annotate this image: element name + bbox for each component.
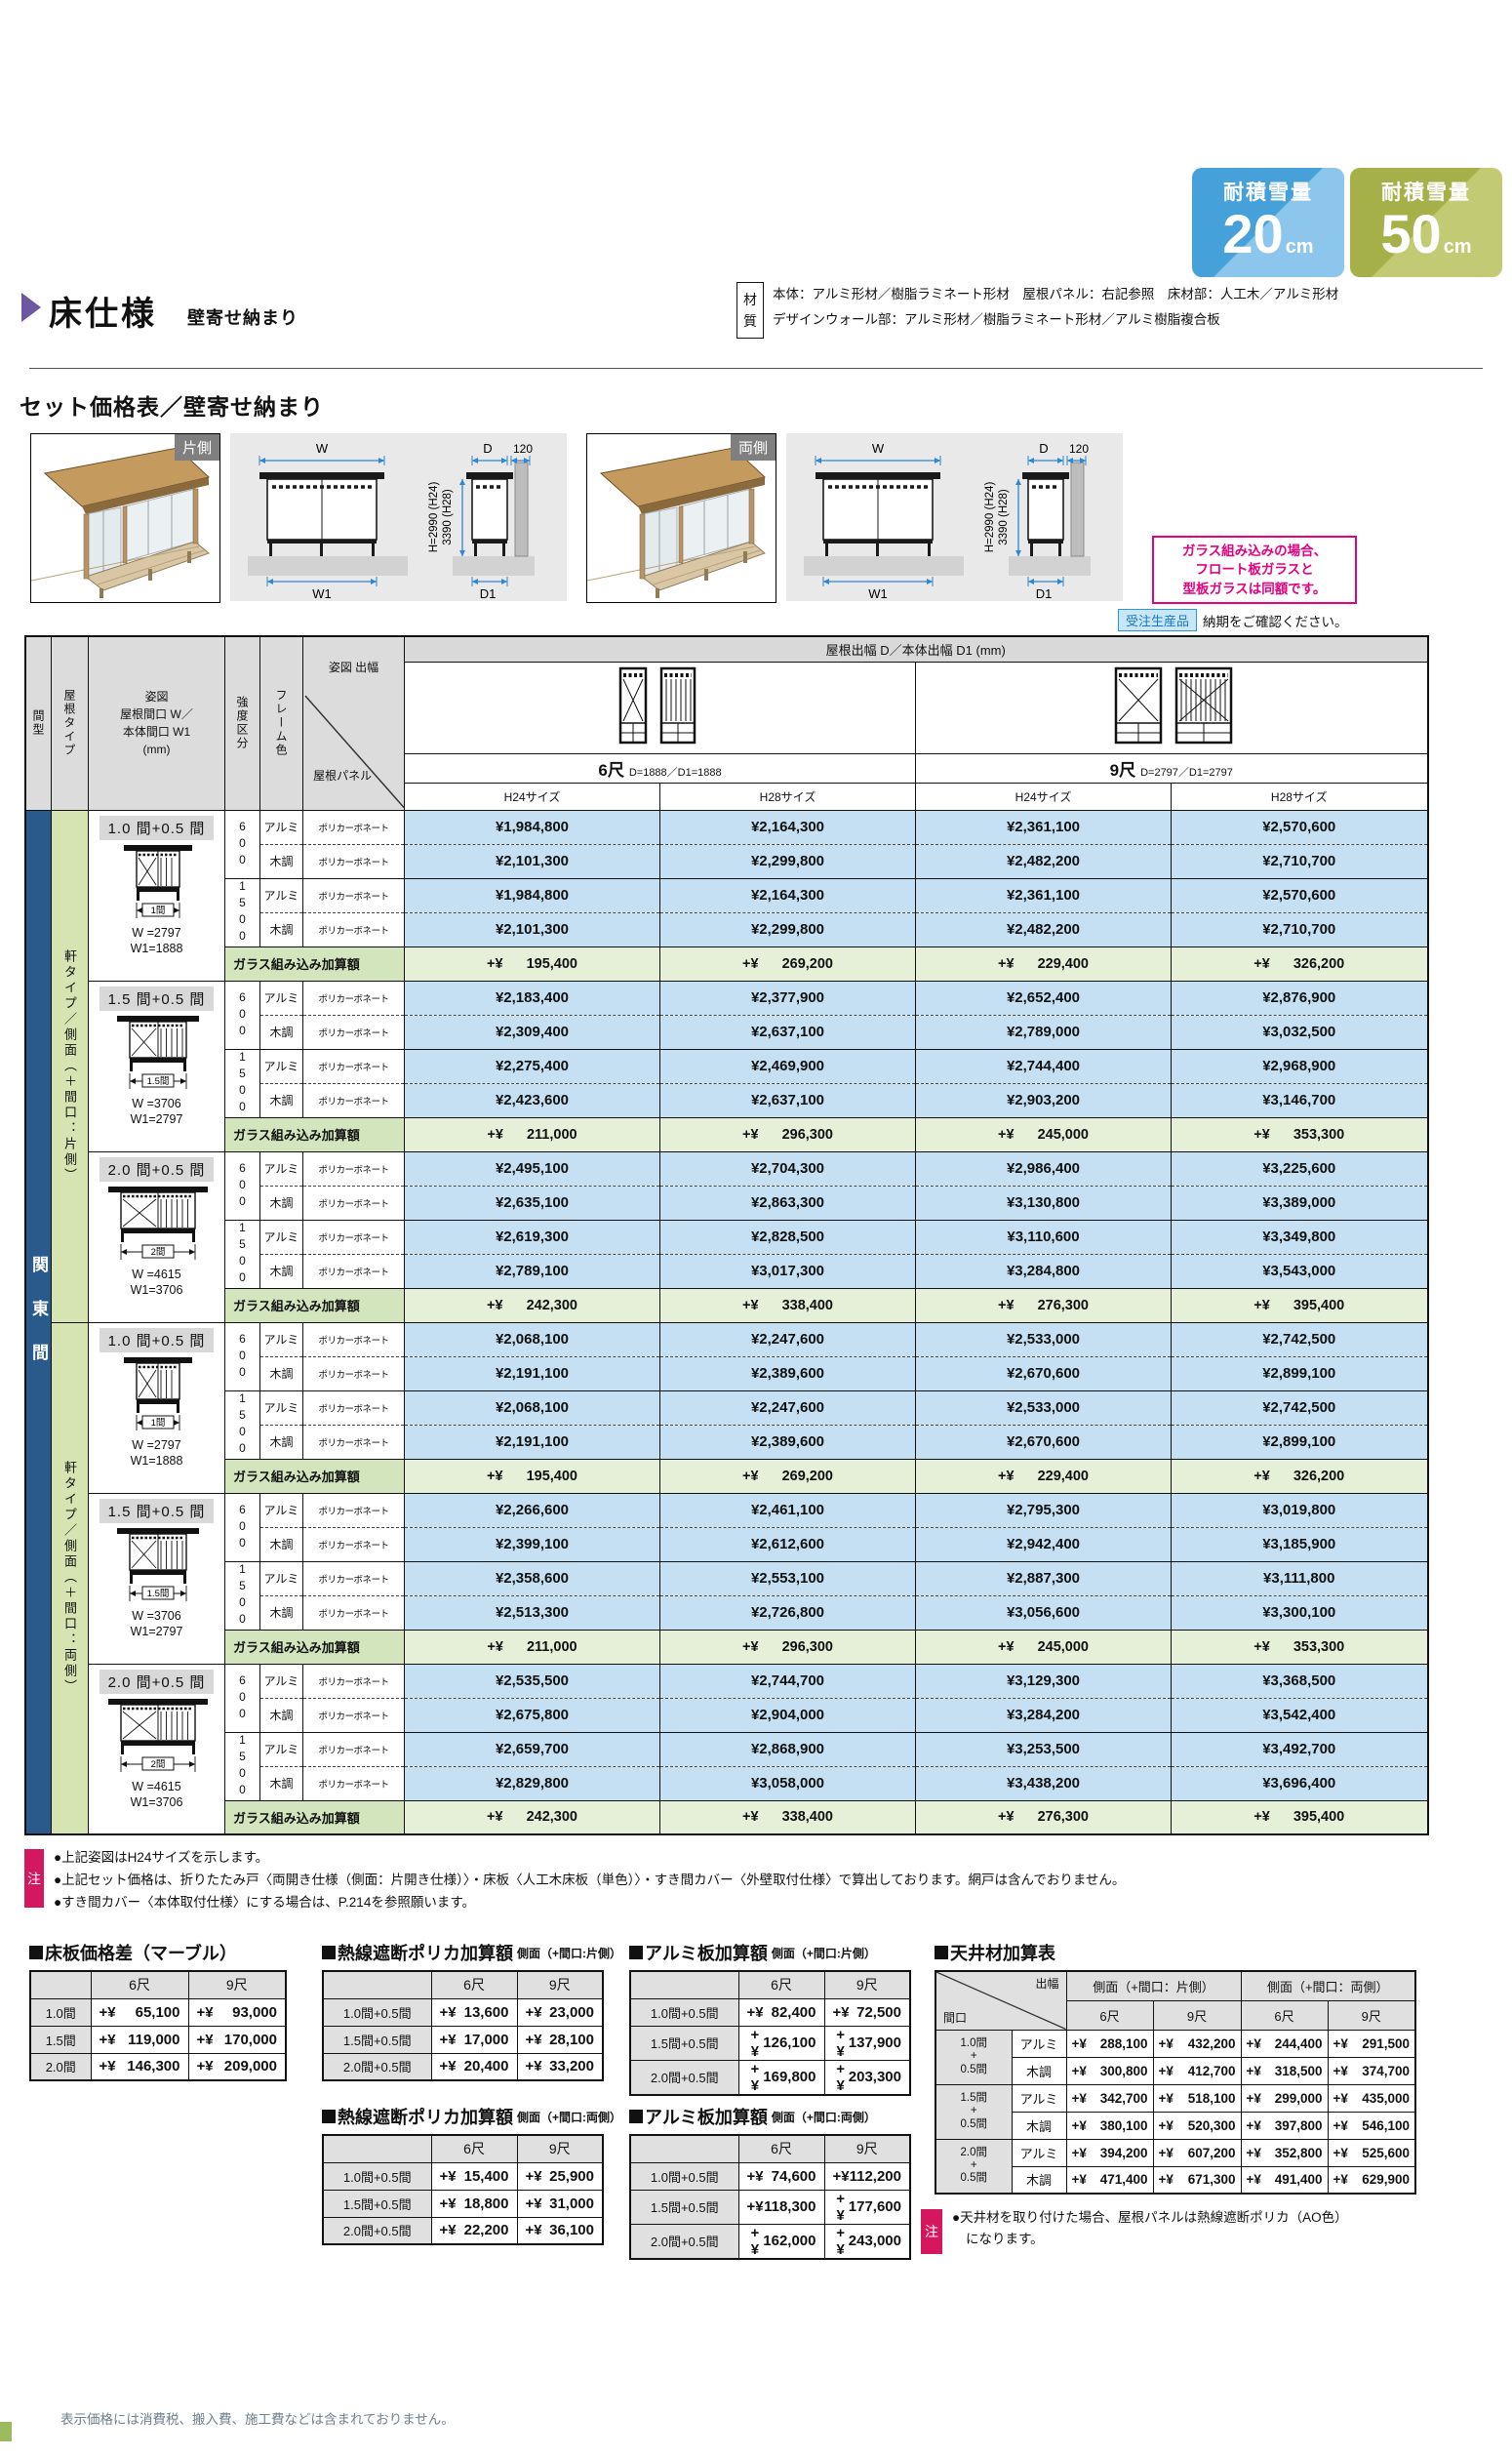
ceiling-price-cell: +¥352,800 xyxy=(1241,2139,1328,2166)
sugata-dim-label: 2間 xyxy=(150,1759,165,1770)
roof-panel-cell: ポリカーボネート xyxy=(303,1664,405,1698)
glass-amount: 245,000 xyxy=(1038,1639,1089,1655)
price-cell: ¥2,513,300 xyxy=(405,1595,660,1630)
sub-table: 床板価格差（マーブル） 6尺9尺1.0間+¥65,100+¥93,0001.5間… xyxy=(29,1940,287,2081)
glass-price-cell: +¥276,300 xyxy=(916,1288,1172,1322)
sugata-header-line: 姿図 xyxy=(89,688,224,705)
w-value: W =4615 xyxy=(89,1267,224,1283)
h24-header: H24サイズ xyxy=(405,783,660,810)
plus-prefix: +¥ xyxy=(747,2061,764,2094)
sub-table-title: アルミ板加算額側面（+間口:両側） xyxy=(629,2104,911,2129)
price-cell: ¥2,612,600 xyxy=(660,1527,916,1561)
row-label: 1.5間+0.5間 xyxy=(630,2190,738,2224)
addition-price-cell: +¥17,000 xyxy=(431,2026,517,2053)
sub-table-grid: 6尺9尺1.0間+0.5間+¥15,400+¥25,9001.5間+0.5間+¥… xyxy=(322,2134,604,2245)
glass-price-cell: +¥195,400 xyxy=(405,1459,660,1493)
ceiling-price-cell: +¥288,100 xyxy=(1066,2030,1153,2057)
glass-amount: 338,400 xyxy=(782,1809,833,1825)
price-cell: ¥3,129,300 xyxy=(916,1664,1172,1698)
glass-price-cell: +¥229,400 xyxy=(916,947,1172,981)
roof-panel-cell: ポリカーボネート xyxy=(303,1766,405,1800)
maguchi-row-label: 1.5間+0.5間 xyxy=(935,2084,1012,2139)
roof-panel-cell: ポリカーボネート xyxy=(303,1186,405,1220)
price-cell: ¥3,300,100 xyxy=(1172,1595,1428,1630)
amount: 82,400 xyxy=(772,2004,816,2021)
plus-prefix: +¥ xyxy=(99,2032,116,2048)
amount: 112,200 xyxy=(850,2168,901,2185)
plus-prefix: +¥ xyxy=(1072,2036,1087,2051)
addition-price-cell: +¥112,200 xyxy=(824,2162,910,2190)
row-label: 1.5間 xyxy=(30,2026,91,2053)
sugata-cell: 2.0 間+0.5 間 2間 W =4615W1=3706 xyxy=(89,1151,225,1322)
col-header-frame: フレーム色 xyxy=(260,636,303,810)
glass-price-cell: +¥269,200 xyxy=(660,947,916,981)
amount: 318,500 xyxy=(1275,2064,1323,2078)
price-cell: ¥2,704,300 xyxy=(660,1151,916,1186)
price-cell: ¥2,275,400 xyxy=(405,1049,660,1083)
plus-prefix: +¥ xyxy=(747,2027,764,2060)
amount: 28,100 xyxy=(549,2032,594,2048)
col-header-6shaku: 6尺 xyxy=(431,1971,517,1998)
roof-panel-cell: ポリカーボネート xyxy=(303,1015,405,1049)
w-value: W =2797 xyxy=(89,925,224,942)
dimension-drawing: W W1 D 120 H=2990 (H24) 3390 (H28) D1 xyxy=(230,433,567,601)
w1-value: W1=3706 xyxy=(89,1282,224,1299)
structure-photo-both-sides: 両側 xyxy=(586,433,776,603)
plus-prefix: +¥ xyxy=(526,2195,542,2212)
plus-prefix: +¥ xyxy=(1072,2064,1087,2078)
sugata-cell: 1.0 間+0.5 間 1間 W =2797W1=1888 xyxy=(89,810,225,981)
note-line: ●上記セット価格は、折りたたみ戸〈両開き仕様（側面：片開き仕様）〉・床板〈人工木… xyxy=(54,1869,1125,1891)
empty-corner-cell xyxy=(323,1971,431,1998)
price-cell: ¥2,361,100 xyxy=(916,878,1172,912)
sub-table-row: 1.5間+0.5間+¥126,100+¥137,900 xyxy=(630,2026,910,2060)
price-cell: ¥2,670,600 xyxy=(916,1356,1172,1390)
glass-price-cell: +¥395,400 xyxy=(1172,1800,1428,1834)
gap-120-label: 120 xyxy=(513,442,533,456)
row-label: 2.0間+0.5間 xyxy=(630,2060,738,2095)
sugata-dim-label: 2間 xyxy=(150,1247,165,1258)
w-value: W =3706 xyxy=(89,1096,224,1112)
roof-panel-cell: ポリカーボネート xyxy=(303,1425,405,1459)
plus-prefix: +¥ xyxy=(742,1127,759,1143)
note-badge: 注 xyxy=(24,1849,44,1908)
price-cell: ¥2,191,100 xyxy=(405,1356,660,1390)
h-label-h24: H=2990 (H24) xyxy=(984,482,996,553)
roof-panel-cell: ポリカーボネート xyxy=(303,1356,405,1390)
plus-prefix: +¥ xyxy=(833,2004,850,2021)
title-square-icon xyxy=(935,1946,948,1959)
set-price-table: 間型 屋根タイプ 姿図屋根間口 W／本体間口 W1(mm) 強度区分 フレーム色… xyxy=(24,635,1429,1835)
material-cell: 木調 xyxy=(1012,2112,1066,2139)
ceiling-header-row-1: 出幅間口 側面（+間口：片側） 側面（+間口：両側） xyxy=(935,1971,1415,2000)
glass-amount: 353,300 xyxy=(1293,1127,1344,1143)
frame-color-cell: アルミ xyxy=(260,1493,303,1527)
block-title: 2.0 間+0.5 間 xyxy=(99,1670,215,1694)
sub-table-header-row: 6尺9尺 xyxy=(323,2135,603,2162)
frame-color-cell: アルミ xyxy=(260,1220,303,1254)
plus-prefix: +¥ xyxy=(1247,2064,1261,2078)
amount: 177,600 xyxy=(849,2198,901,2215)
w-label: W xyxy=(872,441,885,456)
note-line: ●すき間カバー〈本体取付仕様〉にする場合は、P.214を参照願います。 xyxy=(54,1891,1125,1913)
plus-prefix: +¥ xyxy=(526,2168,542,2185)
ceiling-price-cell: +¥607,200 xyxy=(1153,2139,1241,2166)
plus-prefix: +¥ xyxy=(1159,2036,1174,2051)
amount: 126,100 xyxy=(763,2034,816,2051)
plus-prefix: +¥ xyxy=(197,2032,214,2048)
note-line: になります。 xyxy=(952,2229,1348,2250)
price-cell: ¥2,904,000 xyxy=(660,1698,916,1732)
plus-prefix: +¥ xyxy=(1247,2036,1261,2051)
sugata-diagram: 1間 xyxy=(99,840,215,920)
amount: 629,900 xyxy=(1362,2172,1410,2187)
note-line: ●上記姿図はH24サイズを示します。 xyxy=(54,1846,1125,1869)
ceiling-price-cell: +¥380,100 xyxy=(1066,2112,1153,2139)
glass-price-cell: +¥245,000 xyxy=(916,1630,1172,1664)
sub-table-grid: 6尺9尺1.0間+0.5間+¥13,600+¥23,0001.5間+0.5間+¥… xyxy=(322,1970,604,2081)
addition-price-cell: +¥28,100 xyxy=(517,2026,603,2053)
glass-amount: 276,300 xyxy=(1038,1809,1089,1825)
price-cell: ¥2,461,100 xyxy=(660,1493,916,1527)
price-cell: ¥1,984,800 xyxy=(405,810,660,844)
diagonal-corner-cell: 出幅間口 xyxy=(935,1971,1066,2030)
price-cell: ¥2,726,800 xyxy=(660,1595,916,1630)
glass-addition-row: ガラス組み込み加算額+¥211,000+¥296,300+¥245,000+¥3… xyxy=(25,1630,1428,1664)
price-cell: ¥2,068,100 xyxy=(405,1390,660,1425)
price-cell: ¥2,903,200 xyxy=(916,1083,1172,1117)
frame-color-cell: アルミ xyxy=(260,1561,303,1595)
label-line: + xyxy=(936,2050,1012,2063)
ceiling-note: 注 ●天井材を取り付けた場合、屋根パネルは熱線遮断ポリカ（AO色） になります。 xyxy=(921,2207,1348,2249)
sugata-header-line: 本体間口 W1 xyxy=(89,723,224,741)
size-header-6shaku: 6尺D=1888／D1=1888 xyxy=(405,753,916,783)
block-title: 1.0 間+0.5 間 xyxy=(99,1328,215,1352)
plus-prefix: +¥ xyxy=(526,2032,542,2048)
price-cell: ¥3,110,600 xyxy=(916,1220,1172,1254)
empty-corner-cell xyxy=(630,2135,738,2162)
col-header-debuta-panel: 姿図 出幅屋根パネル xyxy=(303,636,405,810)
price-cell: ¥2,863,300 xyxy=(660,1186,916,1220)
sub-table-row: 1.0間+¥65,100+¥93,000 xyxy=(30,1998,286,2026)
material-cell: 木調 xyxy=(1012,2166,1066,2194)
addition-price-cell: +¥137,900 xyxy=(824,2026,910,2060)
d1-label: D1 xyxy=(480,586,497,601)
roof-panel-cell: ポリカーボネート xyxy=(303,844,405,878)
price-cell: ¥2,299,800 xyxy=(660,912,916,947)
amount: 23,000 xyxy=(549,2004,594,2021)
col-header-6shaku: 6尺 xyxy=(738,2135,824,2162)
plus-prefix: +¥ xyxy=(747,2198,764,2215)
ceiling-price-cell: +¥518,100 xyxy=(1153,2084,1241,2112)
ceiling-price-cell: +¥491,400 xyxy=(1241,2166,1328,2194)
ceiling-data-row: 2.0間+0.5間アルミ+¥394,200+¥607,200+¥352,800+… xyxy=(935,2139,1415,2166)
glass-addition-row: ガラス組み込み加算額+¥242,300+¥338,400+¥276,300+¥3… xyxy=(25,1800,1428,1834)
col-header-roof-type: 屋根タイプ xyxy=(52,636,89,810)
frame-color-cell: アルミ xyxy=(260,1322,303,1356)
row-label: 1.0間 xyxy=(30,1998,91,2026)
amount: 435,000 xyxy=(1362,2091,1410,2106)
maguchi-row-label: 2.0間+0.5間 xyxy=(935,2139,1012,2194)
material-char: 材 xyxy=(743,289,757,310)
amount: 342,700 xyxy=(1100,2091,1148,2106)
w-value: W =2797 xyxy=(89,1437,224,1454)
glass-note-box: ガラス組み込みの場合、 フロート板ガラスと 型板ガラスは同額です。 xyxy=(1152,536,1357,604)
plus-prefix: +¥ xyxy=(1247,2118,1261,2133)
roof-panel-cell: ポリカーボネート xyxy=(303,1151,405,1186)
plus-prefix: +¥ xyxy=(1333,2064,1348,2078)
price-cell: ¥3,146,700 xyxy=(1172,1083,1428,1117)
glass-amount: 296,300 xyxy=(782,1639,833,1655)
made-to-order-text: 納期をご確認ください。 xyxy=(1203,611,1348,630)
amount: 546,100 xyxy=(1362,2118,1410,2133)
amount: 374,700 xyxy=(1362,2064,1410,2078)
addition-price-cell: +¥72,500 xyxy=(824,1998,910,2026)
row-label: 1.0間+0.5間 xyxy=(323,2162,431,2190)
label-line: + xyxy=(936,2105,1012,2117)
plus-prefix: +¥ xyxy=(1159,2118,1174,2133)
plus-prefix: +¥ xyxy=(833,2168,850,2185)
glass-note-line: ガラス組み込みの場合、 xyxy=(1154,542,1355,561)
addition-price-cell: +¥169,800 xyxy=(738,2060,824,2095)
glass-amount: 242,300 xyxy=(527,1298,577,1313)
sub-table-title: アルミ板加算額側面（+間口:片側） xyxy=(629,1940,911,1965)
amount: 244,400 xyxy=(1275,2036,1323,2051)
plus-prefix: +¥ xyxy=(1072,2146,1087,2160)
amount: 518,100 xyxy=(1188,2091,1236,2106)
plus-prefix: +¥ xyxy=(998,1298,1015,1313)
label-line: + xyxy=(936,2159,1012,2172)
price-row: 1.5 間+0.5 間 1.5間 W =3706W1=2797600アルミポリカ… xyxy=(25,981,1428,1015)
sub-table-row: 2.0間+0.5間+¥162,000+¥243,000 xyxy=(630,2224,910,2259)
frame-color-cell: 木調 xyxy=(260,844,303,878)
frame-color-cell: アルミ xyxy=(260,878,303,912)
ceiling-material-table-wrap: 天井材加算表 出幅間口 側面（+間口：片側） 側面（+間口：両側）6尺9尺6尺9… xyxy=(935,1940,1416,2195)
title-square-icon xyxy=(629,1946,643,1959)
sugata-cell: 1.5 間+0.5 間 1.5間 W =3706W1=2797 xyxy=(89,981,225,1151)
price-cell: ¥3,111,800 xyxy=(1172,1561,1428,1595)
sub-table-grid: 6尺9尺1.0間+¥65,100+¥93,0001.5間+¥119,000+¥1… xyxy=(29,1970,287,2081)
amount: 146,300 xyxy=(127,2058,179,2074)
addition-price-cell: +¥118,300 xyxy=(738,2190,824,2224)
sub-table-row: 2.0間+0.5間+¥20,400+¥33,200 xyxy=(323,2053,603,2080)
d1-label: D1 xyxy=(1036,586,1053,601)
price-cell: ¥3,389,000 xyxy=(1172,1186,1428,1220)
price-cell: ¥2,710,700 xyxy=(1172,912,1428,947)
glass-amount: 195,400 xyxy=(527,956,577,972)
plus-prefix: +¥ xyxy=(742,1639,759,1655)
glass-amount: 338,400 xyxy=(782,1298,833,1313)
label-line: 2.0間 xyxy=(936,2147,1012,2159)
section-title: セット価格表／壁寄せ納まり xyxy=(20,388,324,422)
sub-table: 熱線遮断ポリカ加算額側面（+間口:片側） 6尺9尺1.0間+0.5間+¥13,6… xyxy=(322,1940,621,2081)
price-cell: ¥2,968,900 xyxy=(1172,1049,1428,1083)
price-cell: ¥2,899,100 xyxy=(1172,1425,1428,1459)
w-value: W =4615 xyxy=(89,1779,224,1795)
plus-prefix: +¥ xyxy=(1333,2172,1348,2187)
glass-addition-label: ガラス組み込み加算額 xyxy=(225,947,405,981)
amount: 93,000 xyxy=(232,2004,277,2021)
price-row: 1.5 間+0.5 間 1.5間 W =3706W1=2797600アルミポリカ… xyxy=(25,1493,1428,1527)
glass-amount: 229,400 xyxy=(1038,1469,1089,1484)
price-cell: ¥2,553,100 xyxy=(660,1561,916,1595)
glass-amount: 326,200 xyxy=(1293,956,1344,972)
price-cell: ¥3,542,400 xyxy=(1172,1698,1428,1732)
glass-note-line: フロート板ガラスと xyxy=(1154,560,1355,580)
set-price-table-wrap: 間型 屋根タイプ 姿図屋根間口 W／本体間口 W1(mm) 強度区分 フレーム色… xyxy=(24,635,1429,1835)
roof-panel-cell: ポリカーボネート xyxy=(303,1493,405,1527)
ceiling-price-cell: +¥342,700 xyxy=(1066,2084,1153,2112)
price-cell: ¥2,533,000 xyxy=(916,1390,1172,1425)
sugata-cell: 1.0 間+0.5 間 1間 W =2797W1=1888 xyxy=(89,1322,225,1493)
row-label: 1.5間+0.5間 xyxy=(323,2190,431,2217)
amount: 671,300 xyxy=(1188,2172,1236,2187)
sub-table-row: 1.0間+0.5間+¥74,600+¥112,200 xyxy=(630,2162,910,2190)
sub-table-row: 2.0間+0.5間+¥169,800+¥203,300 xyxy=(630,2060,910,2095)
material-cell: アルミ xyxy=(1012,2030,1066,2057)
amount: 65,100 xyxy=(136,2004,180,2021)
amount: 300,800 xyxy=(1100,2064,1148,2078)
col-header-9shaku: 9尺 xyxy=(824,1971,910,1998)
roof-panel-cell: ポリカーボネート xyxy=(303,810,405,844)
price-cell: ¥2,570,600 xyxy=(1172,810,1428,844)
plus-prefix: +¥ xyxy=(1247,2146,1261,2160)
sugata-dim-label: 1間 xyxy=(150,1418,165,1429)
price-cell: ¥2,377,900 xyxy=(660,981,916,1015)
amount: 432,200 xyxy=(1188,2036,1236,2051)
glass-amount: 326,200 xyxy=(1293,1469,1344,1484)
plus-prefix: +¥ xyxy=(487,1809,503,1825)
price-cell: ¥2,482,200 xyxy=(916,912,1172,947)
roof-panel-cell: ポリカーボネート xyxy=(303,1049,405,1083)
price-cell: ¥3,349,800 xyxy=(1172,1220,1428,1254)
badge-label: 耐積雪量 xyxy=(1192,177,1344,206)
ceiling-price-cell: +¥244,400 xyxy=(1241,2030,1328,2057)
price-cell: ¥2,389,600 xyxy=(660,1356,916,1390)
plus-prefix: +¥ xyxy=(487,1469,503,1484)
price-cell: ¥2,795,300 xyxy=(916,1493,1172,1527)
strength-class-cell: 600 xyxy=(225,1322,260,1390)
window-diagram-6shaku xyxy=(405,662,916,753)
price-cell: ¥2,868,900 xyxy=(660,1732,916,1766)
frame-color-cell: 木調 xyxy=(260,1356,303,1390)
d-label: D xyxy=(1039,441,1048,456)
price-row: 2.0 間+0.5 間 2間 W =4615W1=3706600アルミポリカーボ… xyxy=(25,1664,1428,1698)
sugata-diagram: 1.5間 xyxy=(99,1523,215,1603)
sugata-diagram: 2間 xyxy=(99,1694,215,1774)
sub-table-subtitle: 側面（+間口:片側） xyxy=(772,1945,876,1961)
sub-table-subtitle: 側面（+間口:両側） xyxy=(772,2109,876,2125)
plus-prefix: +¥ xyxy=(1247,2172,1261,2187)
sub-table-title: 熱線遮断ポリカ加算額側面（+間口:片側） xyxy=(322,1940,621,1965)
ceiling-price-cell: +¥629,900 xyxy=(1328,2166,1415,2194)
roof-panel-cell: ポリカーボネート xyxy=(303,1732,405,1766)
sugata-cell: 2.0 間+0.5 間 2間 W =4615W1=3706 xyxy=(89,1664,225,1834)
ceiling-note-lines: ●天井材を取り付けた場合、屋根パネルは熱線遮断ポリカ（AO色） になります。 xyxy=(952,2207,1348,2249)
sugata-dim-label: 1.5間 xyxy=(146,1589,169,1599)
ceiling-data-row: 1.0間+0.5間アルミ+¥288,100+¥432,200+¥244,400+… xyxy=(935,2030,1415,2057)
strength-class-cell: 1500 xyxy=(225,878,260,947)
debuta-header: 姿図 出幅 xyxy=(303,659,404,675)
page-corner-mark xyxy=(0,2422,12,2441)
addition-price-cell: +¥93,000 xyxy=(188,1998,286,2026)
price-cell: ¥2,829,800 xyxy=(405,1766,660,1800)
plus-prefix: +¥ xyxy=(833,2061,849,2094)
price-cell: ¥2,986,400 xyxy=(916,1151,1172,1186)
plus-prefix: +¥ xyxy=(487,1298,503,1313)
row-label: 1.0間+0.5間 xyxy=(630,1998,738,2026)
amount: 412,700 xyxy=(1188,2064,1236,2078)
addition-price-cell: +¥25,900 xyxy=(517,2162,603,2190)
label-line: 0.5間 xyxy=(936,2118,1012,2131)
frame-color-cell: アルミ xyxy=(260,981,303,1015)
sub-table-row: 1.5間+0.5間+¥18,800+¥31,000 xyxy=(323,2190,603,2217)
plus-prefix: +¥ xyxy=(747,2225,764,2258)
label-line: 0.5間 xyxy=(936,2172,1012,2185)
divider xyxy=(29,368,1483,369)
sub-table-header-row: 6尺9尺 xyxy=(323,1971,603,1998)
glass-amount: 296,300 xyxy=(782,1127,833,1143)
w1-value: W1=2797 xyxy=(89,1624,224,1640)
window-diagram xyxy=(587,663,734,748)
amount: 162,000 xyxy=(763,2233,816,2249)
roof-type-side-label: 軒タイプ／側面（＋間口：両側） xyxy=(52,1322,89,1834)
plus-prefix: +¥ xyxy=(742,1809,759,1825)
w1-value: W1=1888 xyxy=(89,1453,224,1470)
price-row: 1500アルミポリカーボネート¥2,068,100¥2,247,600¥2,53… xyxy=(25,1390,1428,1425)
addition-price-cell: +¥20,400 xyxy=(431,2053,517,2080)
span-header: 屋根出幅 D／本体出幅 D1 (mm) xyxy=(405,636,1428,662)
structure-photo-single-side: 片側 xyxy=(30,433,220,603)
corner-maguchi-label: 間口 xyxy=(943,2009,967,2026)
ceiling-price-cell: +¥432,200 xyxy=(1153,2030,1241,2057)
col-header-9shaku: 9尺 xyxy=(517,1971,603,1998)
price-cell: ¥2,789,000 xyxy=(916,1015,1172,1049)
price-cell: ¥2,101,300 xyxy=(405,912,660,947)
amount: 22,200 xyxy=(464,2222,509,2238)
label-line: 1.0間 xyxy=(936,2037,1012,2050)
ceiling-table-title: 天井材加算表 xyxy=(935,1940,1416,1965)
glass-price-cell: +¥353,300 xyxy=(1172,1117,1428,1151)
glass-amount: 395,400 xyxy=(1293,1809,1344,1825)
roof-panel-cell: ポリカーボネート xyxy=(303,1698,405,1732)
price-row: 軒タイプ／側面（＋間口：両側）1.0 間+0.5 間 1間 W =2797W1=… xyxy=(25,1322,1428,1356)
frame-color-cell: 木調 xyxy=(260,1186,303,1220)
row-label: 1.0間+0.5間 xyxy=(630,2162,738,2190)
ceiling-price-cell: +¥374,700 xyxy=(1328,2057,1415,2084)
glass-amount: 229,400 xyxy=(1038,956,1089,972)
amount: 25,900 xyxy=(549,2168,594,2185)
price-row: 1500アルミポリカーボネート¥2,275,400¥2,469,900¥2,74… xyxy=(25,1049,1428,1083)
sugata-diagram: 2間 xyxy=(99,1182,215,1262)
glass-amount: 395,400 xyxy=(1293,1298,1344,1313)
material-label-box: 材 質 xyxy=(736,282,764,339)
price-cell: ¥2,635,100 xyxy=(405,1186,660,1220)
title-square-icon xyxy=(322,2110,336,2123)
col-header-6shaku: 6尺 xyxy=(431,2135,517,2162)
corner-debuta-label: 出幅 xyxy=(1035,1975,1058,1992)
amount: 18,800 xyxy=(464,2195,509,2212)
addition-price-cell: +¥119,000 xyxy=(91,2026,188,2053)
plus-prefix: +¥ xyxy=(1072,2091,1087,2106)
sub-table-title-text: アルミ板加算額 xyxy=(645,1940,768,1965)
price-cell: ¥2,247,600 xyxy=(660,1322,916,1356)
plus-prefix: +¥ xyxy=(998,956,1015,972)
amount: 209,000 xyxy=(224,2058,277,2074)
plus-prefix: +¥ xyxy=(440,2032,457,2048)
glass-amount: 269,200 xyxy=(782,1469,833,1484)
amount: 119,000 xyxy=(128,2032,179,2048)
